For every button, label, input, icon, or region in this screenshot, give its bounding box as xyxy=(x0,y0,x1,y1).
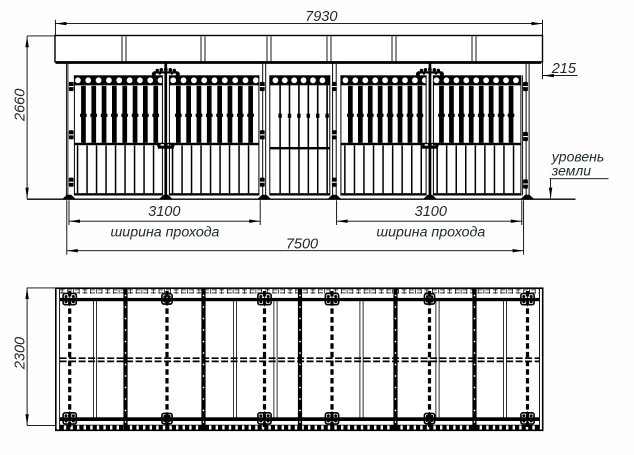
svg-text:3100: 3100 xyxy=(148,204,180,220)
svg-text:3100: 3100 xyxy=(415,204,447,220)
svg-text:ширина прохода: ширина прохода xyxy=(376,225,485,241)
svg-text:215: 215 xyxy=(551,61,577,77)
svg-text:7930: 7930 xyxy=(305,9,337,25)
svg-text:ширина прохода: ширина прохода xyxy=(111,225,220,241)
svg-text:2300: 2300 xyxy=(12,337,28,370)
svg-text:7500: 7500 xyxy=(286,236,318,252)
svg-text:2660: 2660 xyxy=(12,89,28,122)
svg-text:земли: земли xyxy=(551,162,591,178)
